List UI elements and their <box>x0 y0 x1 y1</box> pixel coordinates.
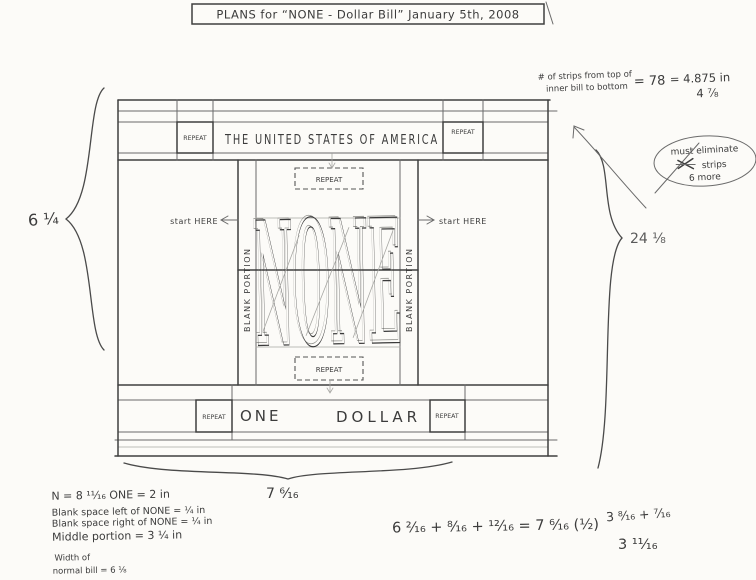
start-here-right-label: start HERE <box>439 217 487 226</box>
none-word: NONE NONE <box>251 180 403 386</box>
width-measure-label: 7 ⁶⁄₁₆ <box>266 486 299 502</box>
eliminate-line3: 6 more <box>689 172 722 184</box>
sum-equation: 6 ²⁄₁₆ + ⁸⁄₁₆ + ¹²⁄₁₆ = 7 ⁶⁄₁₆ (½) <box>392 517 599 537</box>
left-measurement: 6 ¼ <box>27 88 104 350</box>
height-measure-label: 6 ¼ <box>27 209 59 230</box>
strips-note: # of strips from top of inner bill to bo… <box>538 66 731 106</box>
none-word-outline: NONE <box>253 180 403 386</box>
strips-fraction-value: 4 ⅞ <box>696 86 719 101</box>
word-dollar: DOLLAR <box>336 408 421 426</box>
blank-portion-right: BLANK PORTION <box>405 248 414 333</box>
title-box-tick <box>546 2 553 24</box>
eliminate-note: must eliminate strips 6 more <box>653 133 756 188</box>
strips-note-line1: # of strips from top of <box>538 70 633 83</box>
word-one: ONE <box>240 407 282 425</box>
footnotes: N = 8 ¹¹⁄₁₆ ONE = 2 in Blank space left … <box>51 487 213 577</box>
dollar-bill-plan-sketch: PLANS for “NONE - Dollar Bill” January 5… <box>0 0 756 580</box>
page-title: PLANS for “NONE - Dollar Bill” January 5… <box>216 8 519 22</box>
strip-count-label: 24 ⅛ <box>630 231 666 247</box>
repeat-label-bottom-right: REPEAT <box>435 413 459 420</box>
blank-portion-left: BLANK PORTION <box>243 248 252 333</box>
eliminate-line1: must eliminate <box>670 144 739 158</box>
curved-arrow <box>574 127 646 208</box>
start-here-left-label: start HERE <box>170 217 218 226</box>
banner-united-states: THE UNITED STATES OF AMERICA <box>224 132 439 148</box>
bottom-measurement: 7 ⁶⁄₁₆ <box>124 462 452 502</box>
bottom-brace <box>124 462 452 479</box>
footnote-normal-bill: normal bill = 6 ⅛ <box>53 565 127 576</box>
footnote-blank-right: Blank space right of NONE = ¼ in <box>52 516 213 530</box>
strips-inches-value: = 4.875 in <box>670 70 731 86</box>
right-measurement: 24 ⅛ <box>596 150 666 468</box>
eliminate-line2: strips <box>702 160 728 171</box>
right-equation-bottom: 3 ¹¹⁄₁₆ <box>618 537 658 553</box>
footnote-n-one: N = 8 ¹¹⁄₁₆ ONE = 2 in <box>51 488 170 503</box>
strips-note-line2: inner bill to bottom <box>546 82 628 95</box>
title-block: PLANS for “NONE - Dollar Bill” January 5… <box>192 2 553 24</box>
sketch-page: PLANS for “NONE - Dollar Bill” January 5… <box>0 0 756 580</box>
strips-count-value: = 78 <box>634 73 666 89</box>
equations: 6 ²⁄₁₆ + ⁸⁄₁₆ + ¹²⁄₁₆ = 7 ⁶⁄₁₆ (½) 3 ⁸⁄₁… <box>392 505 671 553</box>
repeat-label-bottom-left: REPEAT <box>202 414 226 421</box>
footnote-width-of: Width of <box>54 553 91 564</box>
repeat-label-top-right: REPEAT <box>451 129 475 136</box>
right-brace <box>596 150 622 468</box>
footnote-middle-portion: Middle portion = 3 ¼ in <box>52 528 182 543</box>
repeat-label-top-left: REPEAT <box>183 135 207 142</box>
right-equation-top: 3 ⁸⁄₁₆ + ⁷⁄₁₆ <box>606 505 671 524</box>
left-brace <box>66 88 104 350</box>
